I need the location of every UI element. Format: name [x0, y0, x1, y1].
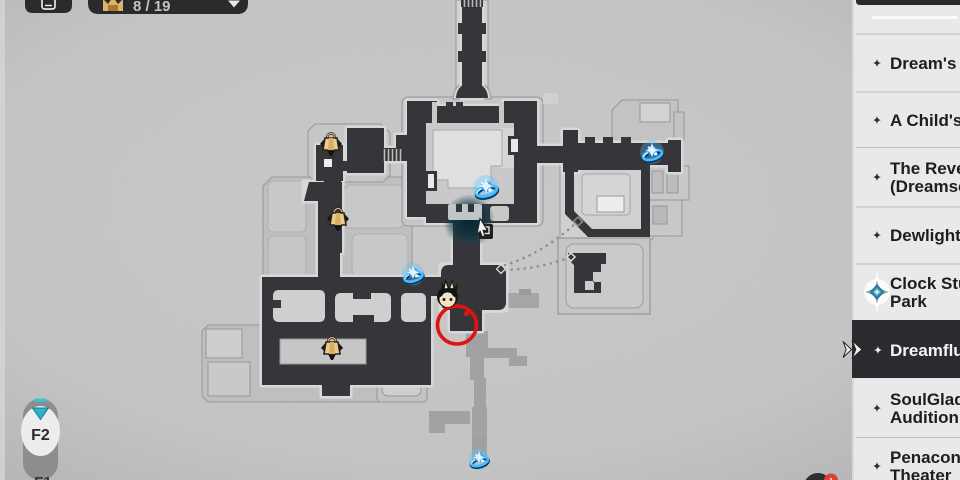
svg-text:8 / 19: 8 / 19: [133, 0, 171, 15]
svg-text:Dewlight Pavilion: Dewlight Pavilion: [890, 226, 960, 245]
svg-text:The Reverie: The Reverie: [890, 159, 960, 178]
svg-text:Park: Park: [890, 292, 927, 311]
svg-text:Dream's Edge: Dream's Edge: [890, 54, 960, 73]
svg-text:Clock Studios: Clock Studios: [890, 274, 960, 293]
svg-text:F1: F1: [34, 474, 52, 480]
svg-text:SoulGlad: SoulGlad: [890, 390, 960, 409]
svg-text:Dreamflux Reef: Dreamflux Reef: [890, 341, 960, 360]
svg-text:Penacony Grand: Penacony Grand: [890, 448, 960, 467]
svg-text:Audition Venue: Audition Venue: [890, 408, 960, 427]
svg-text:F2: F2: [31, 427, 50, 444]
svg-text:Theater: Theater: [890, 466, 952, 480]
svg-text:(Dreamscape): (Dreamscape): [890, 177, 960, 196]
svg-text:A Child's Dream: A Child's Dream: [890, 111, 960, 130]
